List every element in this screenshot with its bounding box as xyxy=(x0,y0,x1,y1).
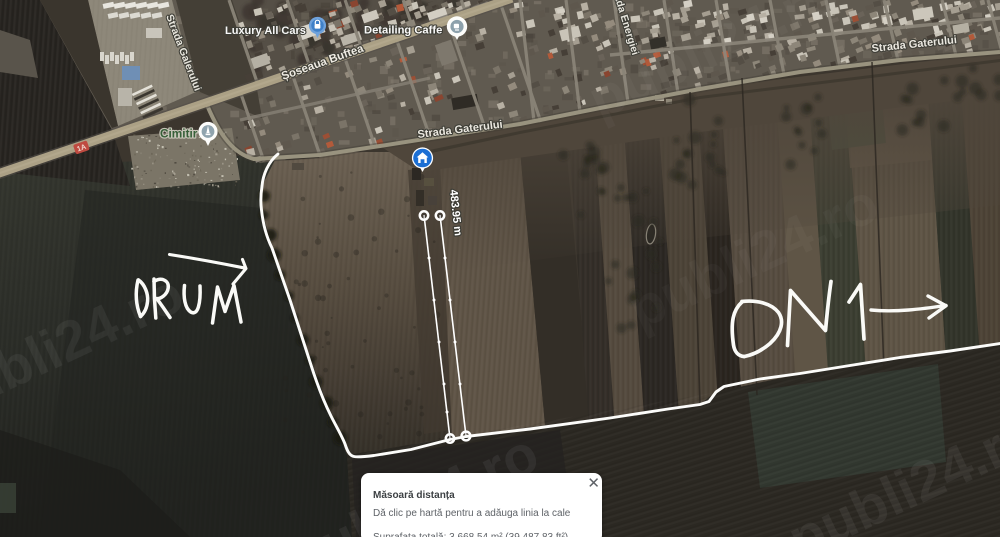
svg-text:Detailing Caffe: Detailing Caffe xyxy=(364,25,442,37)
svg-text:Luxury All Cars: Luxury All Cars xyxy=(225,25,306,37)
svg-text:Cimitir: Cimitir xyxy=(160,127,198,141)
